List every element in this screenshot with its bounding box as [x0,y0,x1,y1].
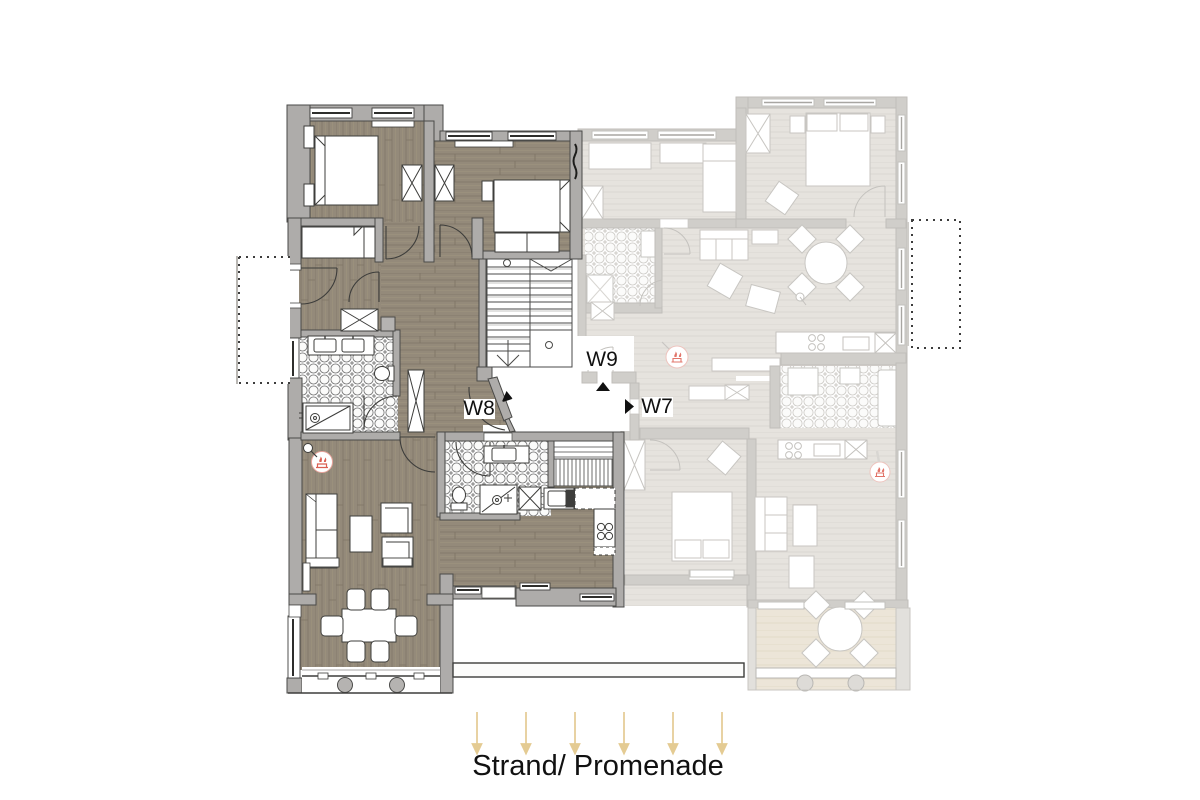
svg-text:W8: W8 [463,397,495,420]
svg-text:W7: W7 [641,395,673,418]
svg-text:Strand/ Promenade: Strand/ Promenade [472,750,723,782]
svg-text:W9: W9 [586,348,618,371]
